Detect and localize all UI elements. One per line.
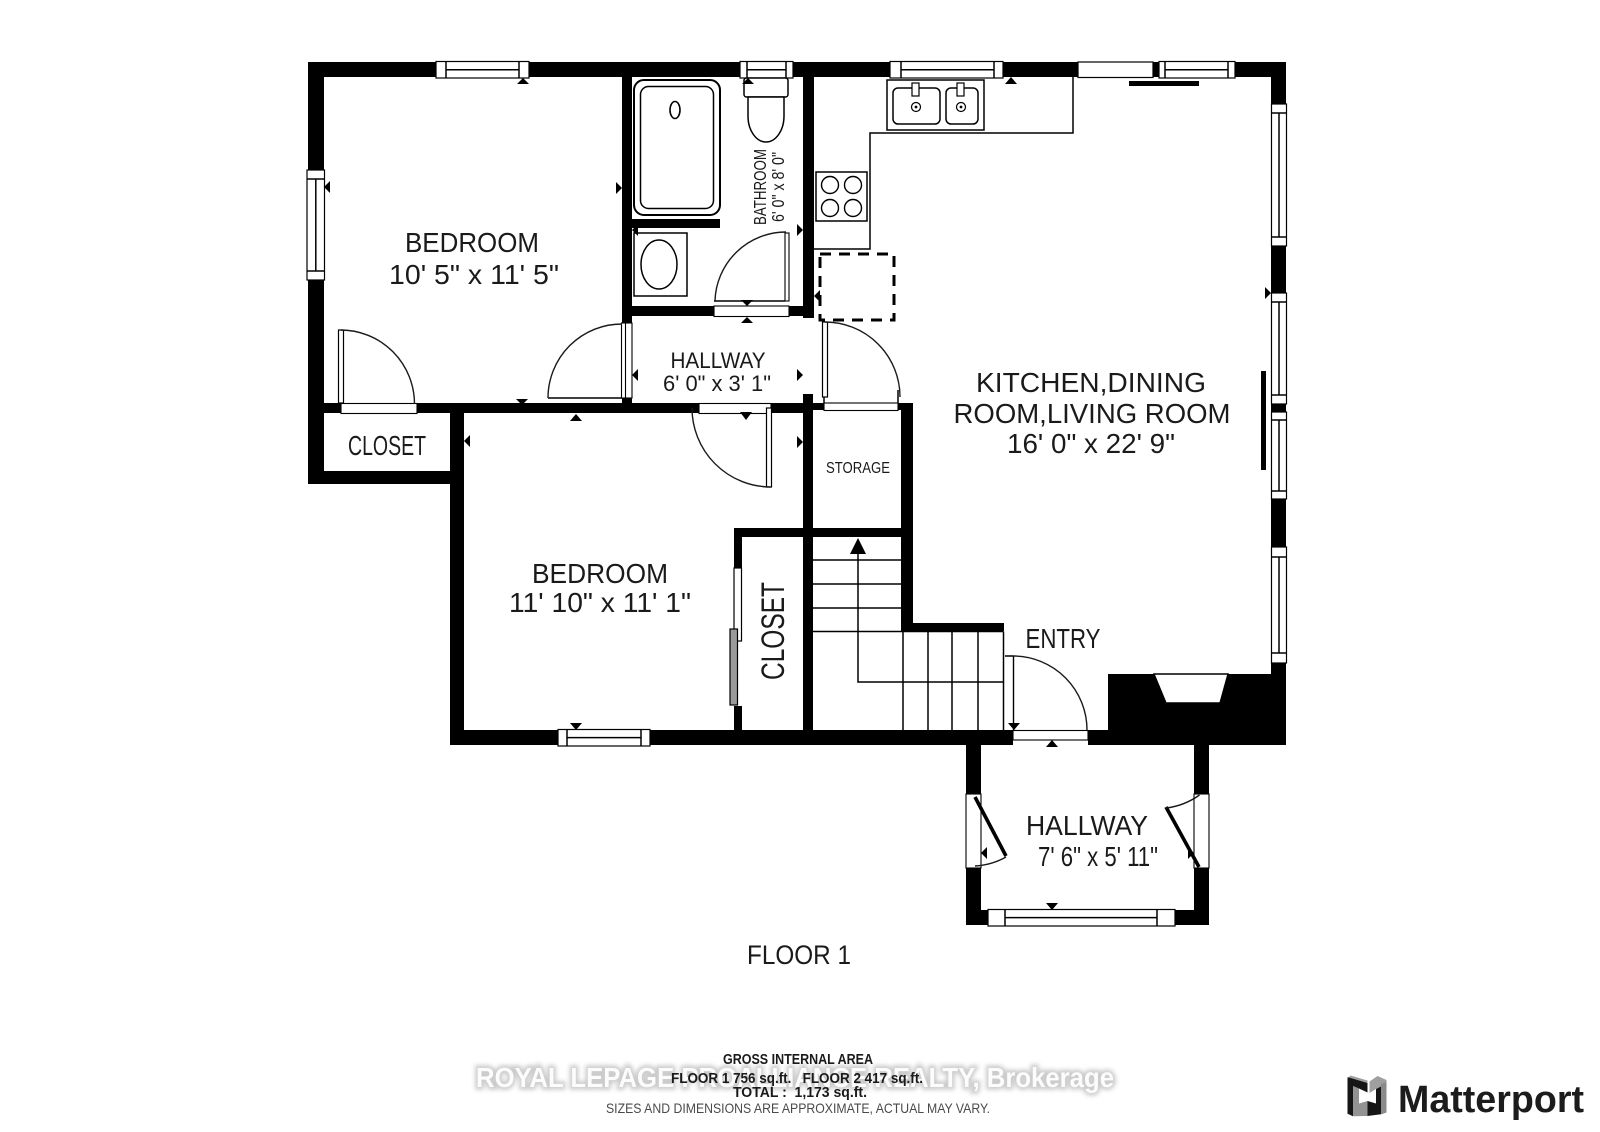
svg-text:HALLWAY: HALLWAY (671, 348, 766, 373)
svg-text:10' 5" x 11' 5": 10' 5" x 11' 5" (389, 259, 559, 290)
svg-text:FLOOR 1: FLOOR 1 (747, 940, 851, 970)
svg-text:16' 0" x 22' 9": 16' 0" x 22' 9" (1007, 428, 1175, 459)
svg-text:6' 0" x 8' 0": 6' 0" x 8' 0" (768, 152, 788, 222)
svg-text:ENTRY: ENTRY (1026, 623, 1101, 654)
svg-text:HALLWAY: HALLWAY (1026, 810, 1148, 841)
svg-text:7' 6" x 5' 11": 7' 6" x 5' 11" (1038, 841, 1158, 872)
svg-text:Matterport: Matterport (1398, 1079, 1584, 1121)
svg-text:SIZES AND DIMENSIONS ARE APPRO: SIZES AND DIMENSIONS ARE APPROXIMATE, AC… (606, 1100, 990, 1116)
svg-text:BEDROOM: BEDROOM (532, 558, 668, 589)
svg-text:11' 10" x 11' 1": 11' 10" x 11' 1" (509, 587, 691, 618)
svg-text:KITCHEN,DINING: KITCHEN,DINING (976, 367, 1206, 398)
svg-text:BEDROOM: BEDROOM (405, 227, 539, 258)
svg-text:CLOSET: CLOSET (348, 430, 426, 461)
svg-text:GROSS INTERNAL AREA: GROSS INTERNAL AREA (723, 1052, 873, 1068)
svg-text:STORAGE: STORAGE (826, 460, 890, 477)
svg-text:ROOM,LIVING ROOM: ROOM,LIVING ROOM (954, 398, 1231, 429)
svg-text:BATHROOM: BATHROOM (750, 149, 770, 225)
svg-text:TOTAL : 1,173 sq.ft.: TOTAL : 1,173 sq.ft. (733, 1085, 867, 1101)
svg-text:CLOSET: CLOSET (755, 582, 791, 680)
svg-text:6' 0" x 3' 1": 6' 0" x 3' 1" (663, 371, 771, 396)
